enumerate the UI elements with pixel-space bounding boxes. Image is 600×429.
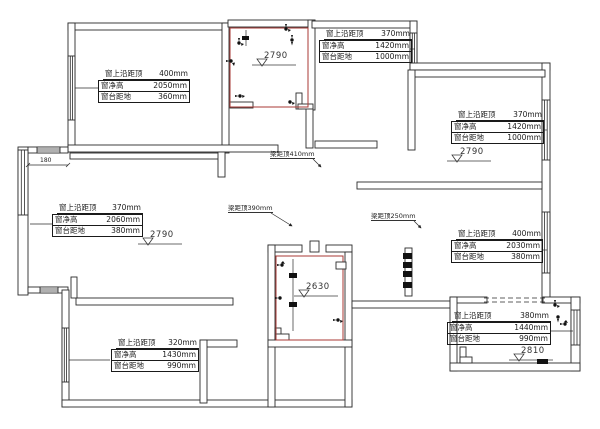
window-symbol (18, 150, 28, 215)
wall (268, 245, 275, 407)
beam-leader (414, 221, 421, 228)
annotation-value: 400mm (512, 229, 541, 239)
annotation-value: 990mm (519, 334, 548, 344)
wall (68, 23, 228, 30)
fixture-symbol (290, 35, 293, 46)
window-symbol (62, 328, 69, 382)
annotation-value: 1000mm (507, 133, 541, 143)
wall (218, 152, 225, 177)
wall (200, 340, 207, 403)
window-annotation-top-left: 窗上沿距顶400mm 窗净高2050mm 窗台距地360mm (98, 69, 190, 103)
annotation-label: 窗上沿距顶 (326, 29, 364, 39)
fixture-symbol (560, 320, 568, 326)
annotation-value: 380mm (111, 226, 140, 236)
wall (222, 23, 229, 153)
fixture-tick (289, 273, 297, 278)
annotation-value: 1420mm (375, 41, 409, 51)
annotation-label: 窗台距地 (114, 361, 144, 371)
annotation-label: 窗台距地 (55, 226, 85, 236)
wall (76, 298, 233, 305)
annotation-label: 窗净高 (101, 81, 124, 91)
fixture-box (336, 262, 346, 269)
annotation-label: 窗上沿距顶 (118, 338, 156, 348)
annotation-value: 1000mm (375, 52, 409, 62)
window-symbol (571, 310, 580, 345)
annotation-label: 窗净高 (322, 41, 345, 51)
annotation-value: 1420mm (507, 122, 541, 132)
wall (450, 363, 580, 371)
wall (268, 340, 352, 347)
floor-plan: 窗上沿距顶400mm 窗净高2050mm 窗台距地360mm 窗上沿距顶370m… (0, 0, 600, 429)
annotation-value: 400mm (159, 69, 188, 79)
window-symbol (37, 147, 60, 153)
fixture-tick (403, 253, 412, 259)
window-annotation-bottom-left: 窗上沿距顶320mm 窗净高1430mm 窗台距地990mm (111, 338, 199, 372)
annotation-value: 370mm (112, 203, 141, 213)
annotation-value: 380mm (511, 252, 540, 262)
wall (68, 145, 278, 152)
beam-annotation: 梁距顶410mm (270, 150, 315, 159)
level-value: 2790 (150, 231, 174, 240)
red-room-outline (276, 256, 343, 340)
annotation-value: 370mm (513, 110, 542, 120)
annotation-label: 窗上沿距顶 (454, 311, 492, 321)
window-annotation-top-middle: 窗上沿距顶370mm 窗净高1420mm 窗台距地1000mm (319, 29, 412, 63)
window-annotation-right-middle: 窗上沿距顶400mm 窗净高2030mm 窗台距地380mm (451, 229, 543, 263)
wall (352, 301, 452, 308)
wall (71, 277, 77, 298)
beam-leader (313, 159, 321, 167)
window-annotation-right-top: 窗上沿距顶370mm 窗净高1420mm 窗台距地1000mm (451, 110, 544, 144)
annotation-label: 窗上沿距顶 (105, 69, 143, 79)
wall (345, 252, 352, 407)
wall (315, 141, 377, 148)
annotation-label: 窗上沿距顶 (59, 203, 97, 213)
red-rooms-layer (230, 28, 343, 340)
window-symbol (68, 56, 75, 120)
dashed-opening (484, 298, 546, 302)
annotation-value: 2050mm (153, 81, 187, 91)
annotation-label: 窗上沿距顶 (458, 229, 496, 239)
fixture-tick (537, 359, 548, 364)
annotation-label: 窗净高 (454, 241, 477, 251)
wall (308, 20, 315, 110)
beam-annotation: 梁距顶390mm (228, 204, 273, 213)
annotation-label: 窗上沿距顶 (458, 110, 496, 120)
level-value: 2810 (521, 347, 545, 356)
wall-step (275, 334, 289, 340)
annotation-label: 窗台距地 (454, 133, 484, 143)
annotation-value: 1440mm (514, 323, 548, 333)
annotation-label: 窗台距地 (101, 92, 131, 102)
wall (312, 21, 417, 28)
annotation-value: 380mm (520, 311, 549, 321)
fixture-tick (289, 302, 297, 307)
wall (413, 70, 545, 77)
wall (228, 20, 315, 27)
window-symbol (542, 212, 550, 273)
window-annotation-bottom-right: 窗上沿距顶380mm 窗净高1440mm 窗台距地990mm (447, 311, 551, 345)
fixture-symbol (277, 261, 285, 267)
fixture-symbol (235, 94, 245, 98)
wall (357, 182, 542, 189)
level-value: 2790 (460, 148, 484, 157)
wall (326, 245, 352, 252)
wall (408, 70, 415, 150)
window-annotation-left-middle: 窗上沿距顶370mm 窗净高2060mm 窗台距地380mm (52, 203, 143, 237)
fixture-symbol (333, 318, 343, 323)
annotation-label: 窗台距地 (322, 52, 352, 62)
annotation-label: 窗台距地 (454, 252, 484, 262)
wall (306, 107, 313, 148)
annotation-value: 2030mm (506, 241, 540, 251)
dimension-value: 180 (40, 157, 51, 164)
fixture-symbol (556, 315, 559, 322)
fixture-tick (242, 36, 249, 40)
level-value: 2790 (264, 52, 288, 61)
beam-annotation: 梁距顶250mm (371, 212, 416, 221)
annotation-value: 360mm (158, 92, 187, 102)
annotation-label: 窗台距地 (450, 334, 480, 344)
annotation-label: 窗净高 (114, 350, 137, 360)
annotation-label: 窗净高 (450, 323, 473, 333)
level-value: 2630 (306, 283, 330, 292)
wall-step (460, 357, 472, 363)
annotation-label: 窗净高 (55, 215, 78, 225)
window-symbol (40, 287, 58, 293)
annotation-label: 窗净高 (454, 122, 477, 132)
fixture-symbol (288, 100, 295, 105)
fixture-tick (403, 282, 412, 288)
fixture-tick (403, 262, 412, 268)
beam-leader (271, 213, 292, 226)
fixture-tick (403, 271, 412, 277)
wall (410, 63, 550, 70)
annotation-value: 990mm (167, 361, 196, 371)
annotation-value: 370mm (381, 29, 410, 39)
annotation-value: 2060mm (106, 215, 140, 225)
door-jamb (310, 241, 319, 252)
annotation-value: 320mm (168, 338, 197, 348)
wall (70, 153, 225, 159)
annotation-value: 1430mm (162, 350, 196, 360)
